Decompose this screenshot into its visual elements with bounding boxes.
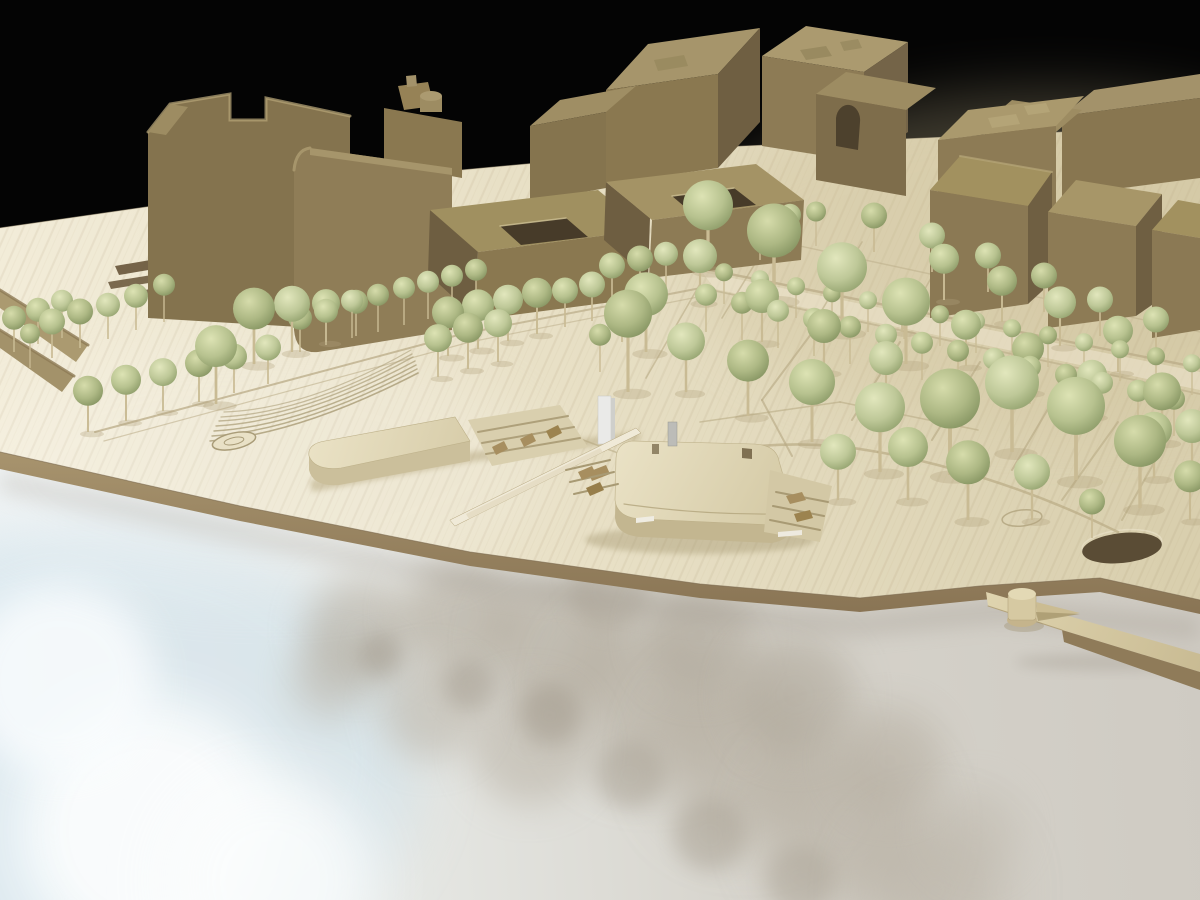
tree-foliage-ball bbox=[1143, 372, 1181, 410]
tree-shadow bbox=[1144, 476, 1173, 484]
tree-foliage-ball bbox=[1003, 319, 1021, 337]
tree-shadow bbox=[675, 390, 705, 398]
arch-opening bbox=[836, 105, 860, 150]
tree-shadow bbox=[241, 361, 275, 370]
tree-foliage-ball bbox=[1075, 333, 1093, 351]
arch-building bbox=[816, 94, 906, 196]
tree-foliage-ball bbox=[787, 277, 805, 295]
tree-foliage-ball bbox=[806, 202, 826, 222]
tree-shadow bbox=[735, 413, 769, 422]
tree-shadow bbox=[203, 401, 237, 410]
model-scene-svg bbox=[0, 0, 1200, 900]
tree-foliage-ball bbox=[946, 440, 990, 484]
tree-shadow bbox=[118, 420, 142, 427]
tree-foliage-ball bbox=[869, 341, 903, 375]
tree-foliage-ball bbox=[367, 284, 389, 306]
tree-shadow bbox=[1051, 344, 1077, 351]
tree-foliage-ball bbox=[929, 244, 959, 274]
tree-foliage-ball bbox=[453, 313, 483, 343]
tree-foliage-ball bbox=[20, 324, 40, 344]
tree-foliage-ball bbox=[417, 271, 439, 293]
tree-shadow bbox=[864, 469, 904, 480]
tree-foliage-ball bbox=[951, 310, 981, 340]
tree-shadow bbox=[632, 349, 667, 359]
rounded-corner-block bbox=[294, 148, 452, 352]
roof-slot bbox=[652, 444, 659, 454]
tree-foliage-ball bbox=[67, 298, 93, 324]
tree-foliage-ball bbox=[683, 180, 733, 230]
tree-shadow bbox=[469, 347, 495, 354]
tree-foliage-ball bbox=[1147, 347, 1165, 365]
tree-foliage-ball bbox=[274, 286, 310, 322]
tree-foliage-ball bbox=[255, 334, 281, 360]
tree-foliage-ball bbox=[820, 434, 856, 470]
tree-shadow bbox=[828, 498, 857, 506]
tree-shadow bbox=[439, 354, 465, 361]
tree-foliage-ball bbox=[807, 309, 841, 343]
tree-shadow bbox=[954, 517, 989, 527]
tree-foliage-ball bbox=[931, 305, 949, 323]
tree-foliage-ball bbox=[839, 316, 861, 338]
tree-foliage-ball bbox=[817, 242, 867, 292]
tree-foliage-ball bbox=[695, 284, 717, 306]
tree-foliage-ball bbox=[1014, 454, 1050, 490]
tree-foliage-ball bbox=[149, 358, 177, 386]
tree-shadow bbox=[282, 350, 311, 358]
tree-shadow bbox=[529, 333, 553, 340]
tree-foliage-ball bbox=[604, 290, 652, 338]
tree-foliage-ball bbox=[424, 324, 452, 352]
tree-shadow bbox=[1123, 504, 1165, 515]
architectural-model-photo bbox=[0, 0, 1200, 900]
tree-foliage-ball bbox=[552, 277, 578, 303]
tree-foliage-ball bbox=[579, 271, 605, 297]
tree-foliage-ball bbox=[985, 356, 1039, 410]
tree-foliage-ball bbox=[667, 322, 705, 360]
tree-shadow bbox=[491, 361, 513, 367]
tree-foliage-ball bbox=[441, 265, 463, 287]
concrete-core bbox=[668, 422, 677, 446]
tree-foliage-ball bbox=[654, 242, 678, 266]
tree-foliage-ball bbox=[1143, 306, 1169, 332]
tree-foliage-ball bbox=[73, 376, 103, 406]
tree-foliage-ball bbox=[882, 278, 930, 326]
tree-foliage-ball bbox=[920, 369, 980, 429]
tree-shadow bbox=[958, 365, 982, 372]
tree-shadow bbox=[431, 376, 453, 382]
tree-foliage-ball bbox=[1087, 286, 1113, 312]
tree-foliage-ball bbox=[789, 359, 835, 405]
tree-foliage-ball bbox=[888, 427, 928, 467]
tree-foliage-ball bbox=[111, 365, 141, 395]
tree-shadow bbox=[460, 368, 484, 375]
tree-foliage-ball bbox=[233, 288, 275, 330]
tree-foliage-ball bbox=[599, 252, 625, 278]
tree-foliage-ball bbox=[1111, 340, 1129, 358]
tree-foliage-ball bbox=[683, 239, 717, 273]
tree-shadow bbox=[1110, 371, 1134, 378]
tree-foliage-ball bbox=[859, 291, 877, 309]
tree-shadow bbox=[156, 410, 178, 416]
tree-shadow bbox=[613, 389, 651, 400]
tree-shadow bbox=[936, 299, 960, 306]
roof-slot bbox=[742, 448, 752, 459]
tree-foliage-ball bbox=[947, 340, 969, 362]
block-wing bbox=[530, 112, 606, 202]
tree-foliage-ball bbox=[522, 278, 552, 308]
tree-foliage-ball bbox=[96, 293, 120, 317]
tree-shadow bbox=[80, 431, 104, 438]
tree-foliage-ball bbox=[484, 309, 512, 337]
tree-foliage-ball bbox=[747, 204, 801, 258]
tree-shadow bbox=[1057, 476, 1103, 489]
tree-shadow bbox=[500, 340, 524, 347]
tree-foliage-ball bbox=[589, 324, 611, 346]
tree-foliage-ball bbox=[855, 382, 905, 432]
tree-foliage-ball bbox=[153, 274, 175, 296]
tree-foliage-ball bbox=[727, 340, 769, 382]
tree-foliage-ball bbox=[2, 306, 26, 330]
tree-shadow bbox=[319, 341, 341, 347]
tree-shadow bbox=[896, 498, 928, 507]
tree-foliage-ball bbox=[627, 245, 653, 271]
tree-foliage-ball bbox=[987, 266, 1017, 296]
tree-foliage-ball bbox=[1031, 262, 1057, 288]
tree-foliage-ball bbox=[195, 325, 237, 367]
tree-foliage-ball bbox=[393, 277, 415, 299]
tree-foliage-ball bbox=[39, 308, 65, 334]
tree-foliage-ball bbox=[314, 299, 338, 323]
tree-foliage-ball bbox=[715, 263, 733, 281]
tree-foliage-ball bbox=[465, 259, 487, 281]
tree-foliage-ball bbox=[861, 202, 887, 228]
tree-foliage-ball bbox=[1114, 415, 1166, 467]
acrylic-core bbox=[598, 396, 611, 444]
tree-foliage-ball bbox=[341, 290, 363, 312]
tree-foliage-ball bbox=[124, 284, 148, 308]
tree-foliage-ball bbox=[1047, 377, 1105, 435]
tree-foliage-ball bbox=[911, 332, 933, 354]
tree-foliage-ball bbox=[767, 300, 789, 322]
tree-shadow bbox=[1022, 518, 1051, 526]
tree-foliage-ball bbox=[975, 242, 1001, 268]
tree-foliage-ball bbox=[1044, 286, 1076, 318]
tree-foliage-ball bbox=[1079, 488, 1105, 514]
